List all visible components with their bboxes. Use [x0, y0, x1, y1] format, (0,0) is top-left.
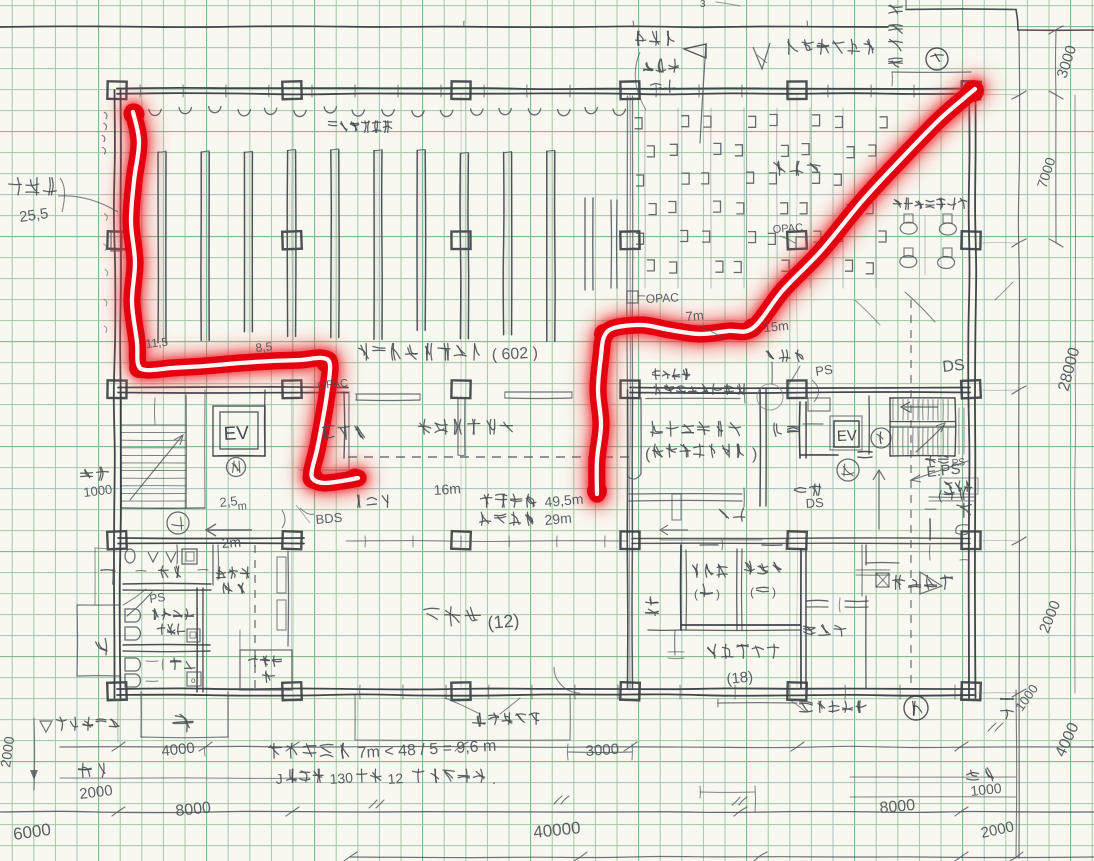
svg-text:.: .: [492, 771, 496, 787]
svg-text:49,5m: 49,5m: [544, 491, 584, 510]
svg-text:1000: 1000: [970, 780, 1003, 799]
svg-text:15m: 15m: [763, 318, 790, 335]
svg-text:DS: DS: [942, 357, 966, 376]
svg-text:): ): [716, 587, 720, 601]
svg-text:29m: 29m: [544, 510, 573, 528]
svg-text:): ): [752, 446, 757, 463]
svg-text:PS: PS: [814, 362, 834, 379]
svg-text:m: m: [237, 500, 247, 513]
svg-text:OPAC: OPAC: [645, 290, 679, 306]
svg-text:PS: PS: [951, 457, 965, 469]
svg-text:PS: PS: [148, 590, 166, 606]
svg-text:12: 12: [387, 770, 404, 787]
svg-text:2m: 2m: [221, 534, 242, 551]
svg-text:DS: DS: [805, 495, 824, 511]
svg-text:EV: EV: [837, 427, 858, 445]
svg-text:(12): (12): [487, 610, 521, 633]
svg-text:o: o: [191, 676, 196, 685]
svg-text:8000: 8000: [879, 797, 916, 817]
svg-text:(18): (18): [726, 668, 754, 688]
svg-text:(: (: [694, 587, 698, 601]
svg-text:3: 3: [700, 0, 706, 10]
svg-text:130: 130: [329, 769, 354, 787]
svg-text:4000: 4000: [161, 740, 196, 760]
svg-text:7m: 7m: [685, 307, 704, 324]
svg-text:8,5: 8,5: [255, 339, 273, 355]
svg-text:EV: EV: [223, 423, 250, 445]
svg-text:(: (: [645, 446, 651, 463]
svg-text:(: (: [750, 585, 754, 599]
svg-text:( 602 ): ( 602 ): [491, 345, 538, 364]
svg-text:2,5: 2,5: [219, 493, 239, 510]
svg-text:): ): [772, 585, 776, 599]
svg-text:3000: 3000: [585, 741, 619, 760]
svg-text:11,5: 11,5: [145, 335, 169, 351]
svg-text:16m: 16m: [433, 480, 461, 498]
svg-text:BDS: BDS: [315, 510, 343, 527]
svg-text:OPAC: OPAC: [772, 222, 803, 236]
svg-text:J: J: [275, 771, 283, 787]
